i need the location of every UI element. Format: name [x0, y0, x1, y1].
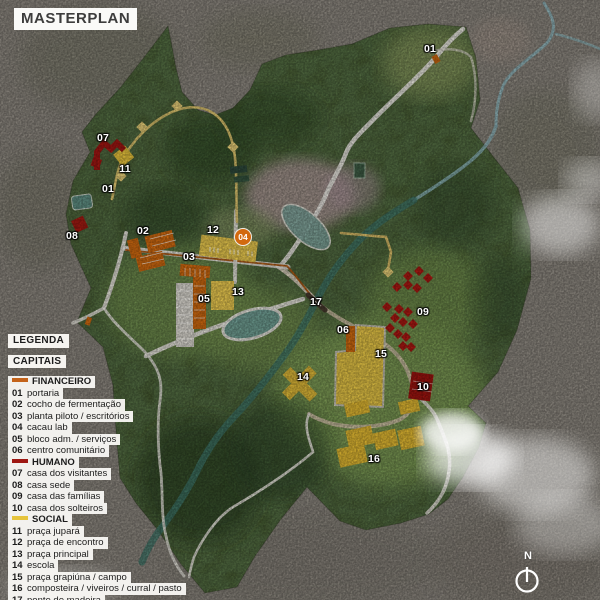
legend-item-09: 09casa das famílias — [8, 491, 186, 503]
map-label-14: 14 — [297, 371, 309, 383]
compass: N — [503, 550, 553, 596]
legend-item-11: 11praça jupará — [8, 526, 186, 538]
map-label-07: 07 — [97, 132, 109, 144]
legend-item-16: 16composteira / viveiros / curral / past… — [8, 583, 186, 595]
legend-item-08: 08casa sede — [8, 480, 186, 492]
legend-subheading: CAPITAIS — [8, 355, 66, 369]
map-label-13: 13 — [232, 286, 244, 298]
map-badge-04: 04 — [234, 228, 252, 246]
legend-item-03: 03planta piloto / escritórios — [8, 411, 186, 423]
legend-section-header: SOCIAL — [8, 514, 186, 526]
legend-section-header: HUMANO — [8, 457, 186, 469]
legend: LEGENDA CAPITAIS FINANCEIRO01portaria02c… — [8, 334, 186, 600]
compass-icon — [503, 550, 553, 596]
legend-color-swatch — [12, 378, 28, 382]
map-label-02: 02 — [137, 225, 149, 237]
map-label-06: 06 — [337, 324, 349, 336]
map-label-03: 03 — [183, 251, 195, 263]
map-label-15: 15 — [375, 348, 387, 360]
legend-item-02: 02cocho de fermentação — [8, 399, 186, 411]
legend-item-07: 07casa dos visitantes — [8, 468, 186, 480]
legend-item-12: 12praça de encontro — [8, 537, 186, 549]
map-label-01: 01 — [102, 183, 114, 195]
legend-item-14: 14escola — [8, 560, 186, 572]
legend-color-swatch — [12, 459, 28, 463]
map-label-09: 09 — [417, 306, 429, 318]
map-label-12: 12 — [207, 224, 219, 236]
map-label-11: 11 — [119, 163, 131, 175]
map-label-08: 08 — [66, 230, 78, 242]
legend-sections: FINANCEIRO01portaria02cocho de fermentaç… — [8, 376, 186, 600]
legend-item-10: 10casa dos solteiros — [8, 503, 186, 515]
page-title: MASTERPLAN — [14, 8, 137, 30]
legend-item-05: 05bloco adm. / serviços — [8, 434, 186, 446]
map-label-10: 10 — [417, 381, 429, 393]
map-label-17: 17 — [310, 296, 322, 308]
legend-item-01: 01portaria — [8, 388, 186, 400]
legend-item-06: 06centro comunitário — [8, 445, 186, 457]
legend-item-15: 15praça grapiúna / campo — [8, 572, 186, 584]
legend-item-04: 04cacau lab — [8, 422, 186, 434]
masterplan-page: MASTERPLAN 01010203050607080910111213141… — [0, 0, 600, 600]
map-label-01: 01 — [424, 43, 436, 55]
map-label-05: 05 — [198, 293, 210, 305]
legend-color-swatch — [12, 516, 28, 520]
legend-heading: LEGENDA — [8, 334, 69, 348]
map-label-16: 16 — [368, 453, 380, 465]
legend-section-header: FINANCEIRO — [8, 376, 186, 388]
legend-item-13: 13praça principal — [8, 549, 186, 561]
legend-item-17: 17ponte de madeira — [8, 595, 186, 600]
